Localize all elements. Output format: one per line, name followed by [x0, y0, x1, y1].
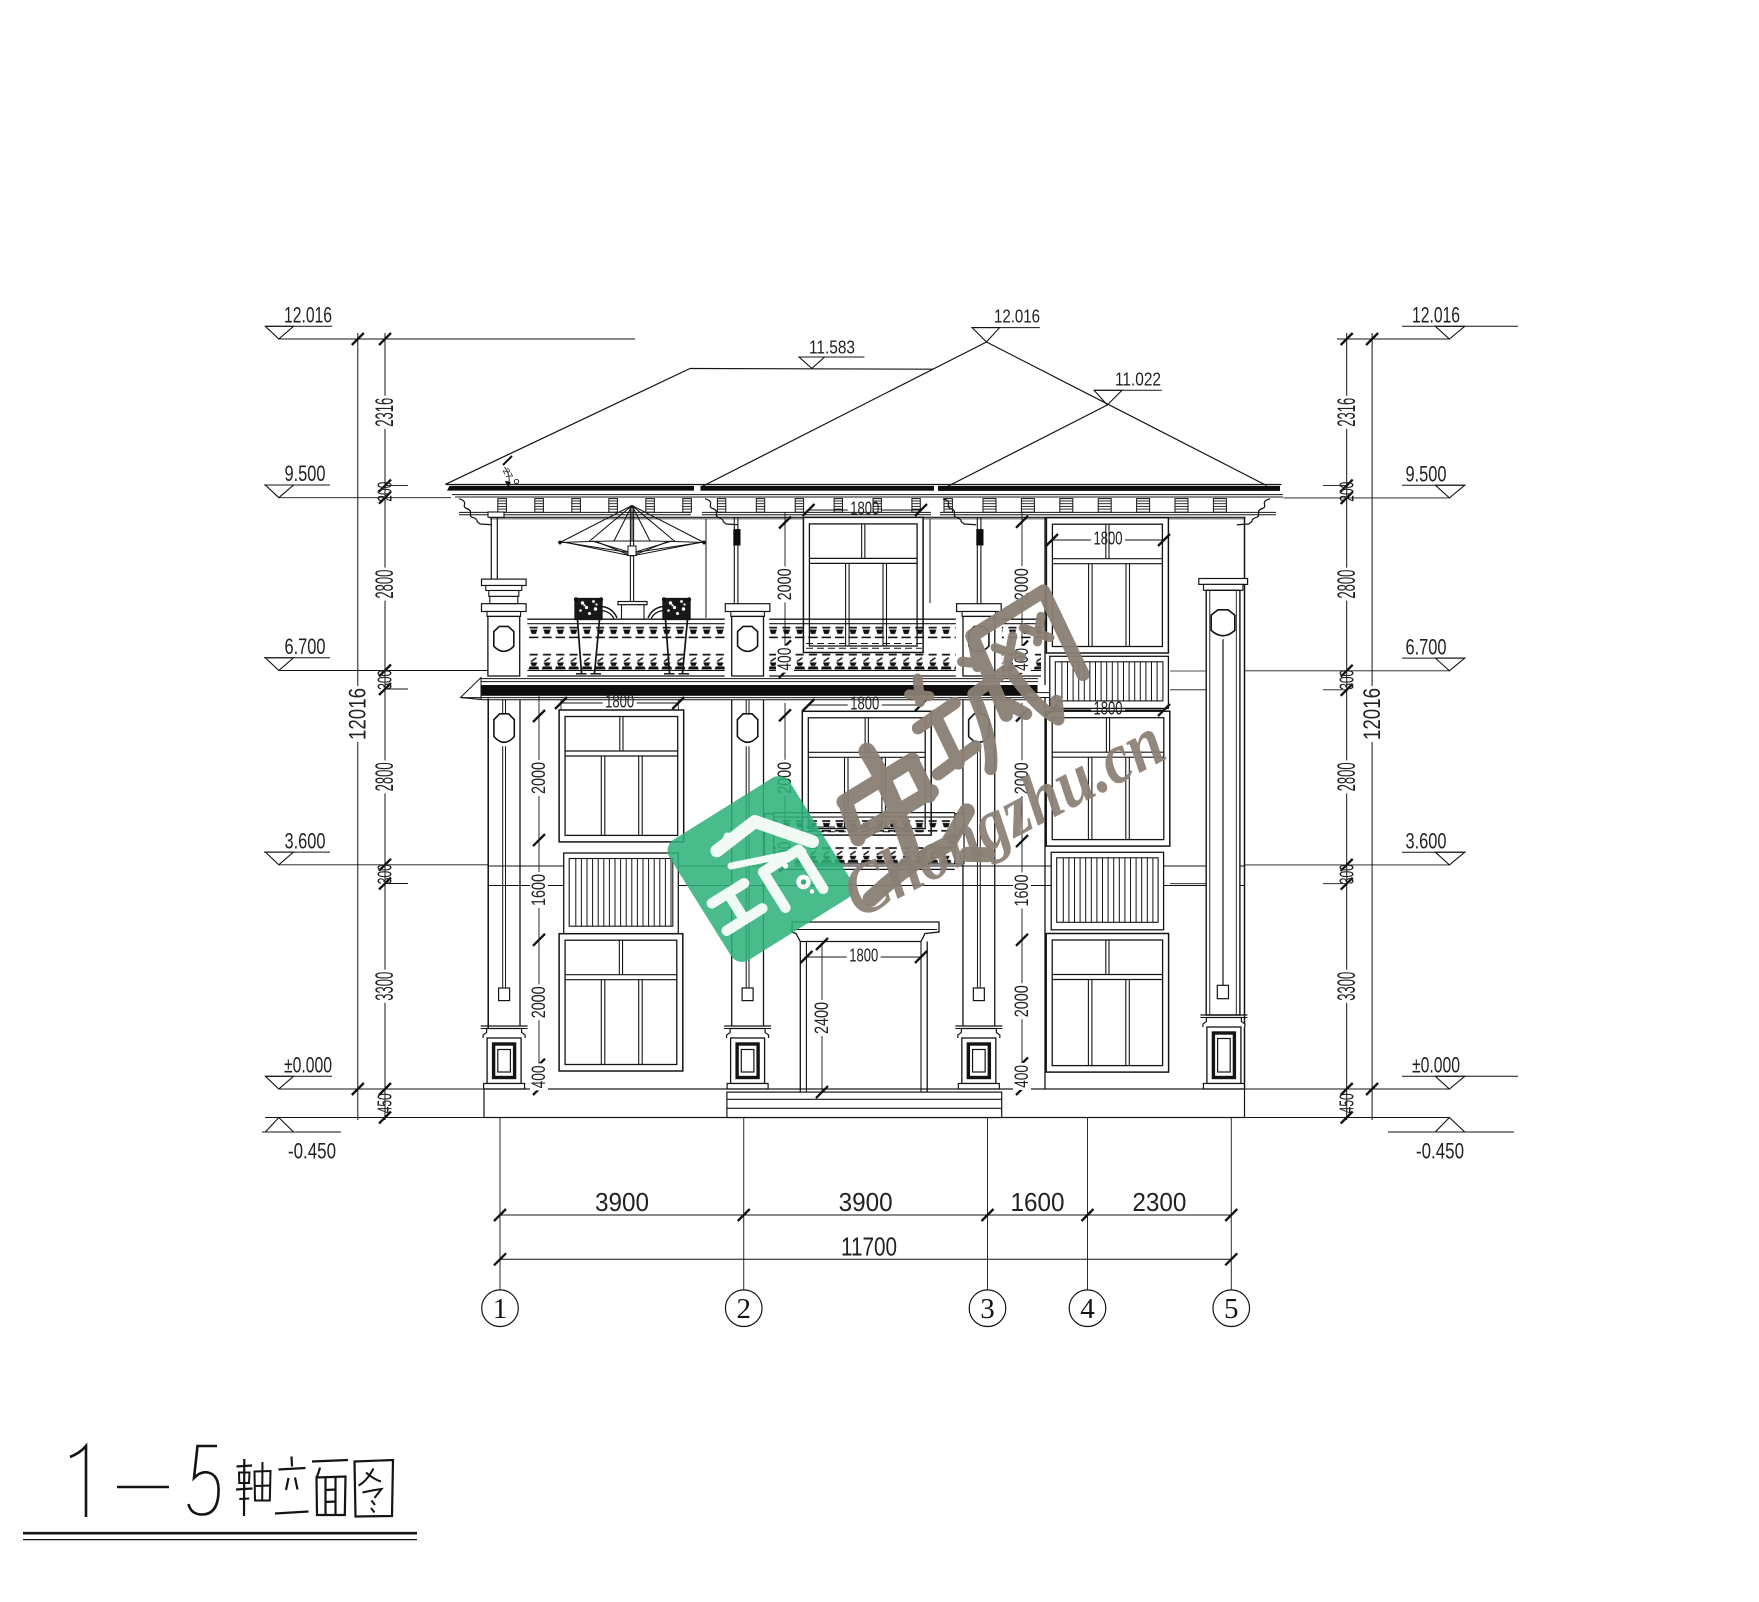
svg-text:1600: 1600 — [529, 874, 550, 906]
svg-text:12016: 12016 — [345, 688, 372, 740]
svg-text:12.016: 12.016 — [284, 303, 332, 328]
svg-text:2800: 2800 — [1333, 570, 1361, 599]
svg-text:-0.450: -0.450 — [288, 1139, 336, 1164]
svg-text:2400: 2400 — [812, 1002, 833, 1034]
svg-text:12.016: 12.016 — [994, 306, 1040, 327]
svg-text:1800: 1800 — [850, 693, 879, 714]
svg-text:3900: 3900 — [595, 1187, 649, 1217]
svg-text:200: 200 — [375, 482, 397, 502]
svg-text:400: 400 — [775, 648, 796, 671]
svg-text:3.600: 3.600 — [285, 828, 326, 853]
svg-text:2000: 2000 — [775, 568, 796, 600]
svg-text:300: 300 — [375, 670, 397, 690]
svg-text:5: 5 — [1224, 1293, 1239, 1325]
svg-text:1: 1 — [493, 1293, 508, 1325]
svg-text:3.600: 3.600 — [1406, 828, 1447, 853]
svg-text:1800: 1800 — [850, 498, 879, 519]
svg-text:2800: 2800 — [1333, 762, 1361, 791]
svg-text:450: 450 — [375, 1093, 397, 1113]
svg-text:400: 400 — [1012, 1065, 1033, 1088]
svg-text:9.500: 9.500 — [1406, 461, 1447, 486]
svg-text:6.700: 6.700 — [285, 634, 326, 659]
svg-text:6.700: 6.700 — [1406, 634, 1447, 659]
svg-text:-0.450: -0.450 — [1416, 1139, 1464, 1164]
svg-text:12.016: 12.016 — [1412, 303, 1460, 328]
svg-text:2800: 2800 — [371, 762, 399, 791]
svg-text:2800: 2800 — [371, 570, 399, 599]
svg-text:2300: 2300 — [1132, 1187, 1186, 1217]
svg-text:±0.000: ±0.000 — [1412, 1053, 1460, 1078]
svg-text:2000: 2000 — [529, 986, 550, 1018]
svg-text:400: 400 — [529, 1065, 550, 1088]
svg-text:3900: 3900 — [839, 1187, 893, 1217]
svg-text:1800: 1800 — [849, 945, 878, 966]
svg-text:9.500: 9.500 — [285, 461, 326, 486]
svg-text:2: 2 — [737, 1293, 752, 1325]
svg-text:2000: 2000 — [1012, 985, 1033, 1017]
svg-text:2000: 2000 — [529, 762, 550, 794]
svg-text:11.583: 11.583 — [809, 336, 855, 357]
svg-text:±0.000: ±0.000 — [284, 1053, 332, 1078]
svg-text:200: 200 — [1336, 482, 1358, 502]
svg-text:11700: 11700 — [841, 1232, 897, 1262]
svg-text:300: 300 — [375, 864, 397, 884]
svg-text:3: 3 — [980, 1293, 995, 1325]
svg-text:3300: 3300 — [1333, 972, 1361, 1001]
svg-text:1800: 1800 — [605, 691, 634, 712]
svg-text:4: 4 — [1080, 1293, 1095, 1325]
svg-text:1600: 1600 — [1011, 1187, 1065, 1217]
svg-text:2316: 2316 — [371, 398, 399, 427]
svg-text:3300: 3300 — [371, 972, 399, 1001]
svg-text:12016: 12016 — [1359, 688, 1386, 740]
svg-text:1600: 1600 — [1012, 875, 1033, 907]
svg-text:300: 300 — [1336, 670, 1358, 690]
svg-text:11.022: 11.022 — [1115, 369, 1161, 390]
svg-text:450: 450 — [1336, 1093, 1358, 1113]
svg-text:2316: 2316 — [1333, 398, 1361, 427]
svg-text:1800: 1800 — [1094, 528, 1123, 549]
svg-text:300: 300 — [1336, 864, 1358, 884]
